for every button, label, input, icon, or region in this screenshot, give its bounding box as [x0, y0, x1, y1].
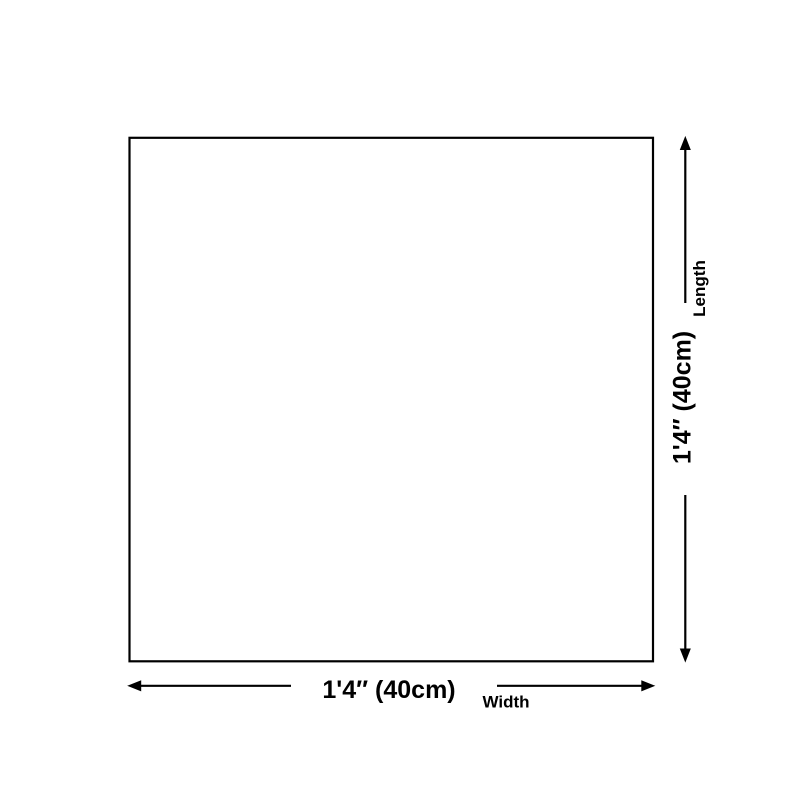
svg-text:1'4″ (40cm): 1'4″ (40cm): [669, 331, 697, 464]
svg-text:Length: Length: [690, 260, 709, 317]
svg-text:1'4″ (40cm): 1'4″ (40cm): [322, 676, 455, 704]
svg-text:Width: Width: [482, 693, 529, 712]
